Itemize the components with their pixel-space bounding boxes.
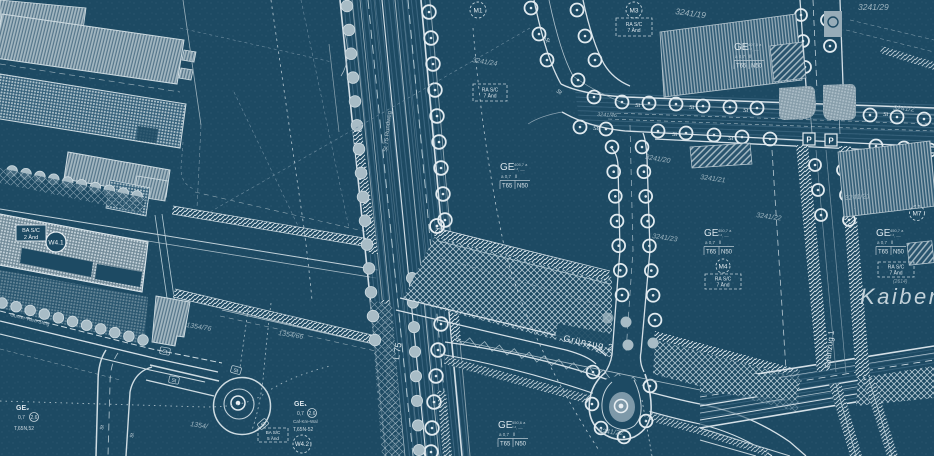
svg-text:0,7: 0,7 — [297, 411, 304, 417]
svg-text:7 Änd: 7 Änd — [483, 93, 496, 100]
svg-text:a 0,7: a 0,7 — [877, 240, 888, 245]
svg-text:Ⅱ: Ⅱ — [891, 240, 893, 245]
svg-text:2,6: 2,6 — [309, 411, 316, 417]
svg-text:GE: GE — [704, 228, 719, 239]
svg-text:M3: M3 — [629, 7, 638, 14]
svg-text:Ⅱ: Ⅱ — [719, 240, 721, 245]
svg-text:0,7: 0,7 — [18, 415, 25, 421]
svg-text:Ⅱ: Ⅱ — [515, 174, 517, 179]
svg-text:3241/29: 3241/29 — [858, 2, 889, 12]
svg-text:St: St — [743, 108, 749, 114]
svg-text:P: P — [806, 136, 812, 145]
svg-text:2 Änd: 2 Änd — [24, 234, 38, 241]
svg-text:(2614): (2614) — [893, 279, 908, 285]
svg-text:St: St — [883, 112, 889, 118]
svg-text:Caf-Kre-Wal: Caf-Kre-Wal — [293, 419, 318, 424]
svg-text:M4: M4 — [718, 263, 727, 270]
svg-text:²·³, ––: ²·³, –– — [748, 47, 759, 52]
svg-text:²·³, ––: ²·³, –– — [514, 167, 525, 172]
svg-text:N50: N50 — [893, 250, 905, 256]
svg-text:a 0,7: a 0,7 — [705, 240, 716, 245]
svg-text:St: St — [689, 105, 695, 111]
svg-text:Ⅱ: Ⅱ — [749, 54, 751, 59]
svg-text:GE: GE — [498, 420, 513, 431]
svg-text:T,65N-52: T,65N-52 — [293, 427, 314, 433]
svg-text:St: St — [593, 126, 599, 132]
svg-text:T65: T65 — [502, 184, 513, 190]
svg-text:N50: N50 — [515, 442, 527, 448]
svg-text:T65: T65 — [878, 250, 889, 256]
svg-text:GE: GE — [500, 162, 515, 173]
svg-text:a 0,7: a 0,7 — [735, 54, 746, 59]
svg-text:7 Änd: 7 Änd — [889, 270, 902, 277]
svg-text:²·³, ––: ²·³, –– — [890, 233, 901, 238]
svg-text:BA S/C: BA S/C — [22, 228, 40, 234]
svg-text:5 Änd: 5 Änd — [267, 435, 279, 441]
svg-text:²·³, ––: ²·³, –– — [718, 233, 729, 238]
svg-text:GE₁: GE₁ — [294, 401, 307, 408]
svg-text:N50: N50 — [751, 64, 763, 70]
svg-text:P: P — [828, 137, 834, 146]
svg-text:²·³, ––: ²·³, –– — [512, 425, 523, 430]
svg-text:3241/2: 3241/2 — [893, 105, 915, 113]
svg-text:Kaiber: Kaiber — [860, 284, 934, 309]
svg-text:3241/46: 3241/46 — [597, 112, 618, 119]
svg-text:GE₂: GE₂ — [16, 405, 29, 412]
svg-text:GE: GE — [734, 42, 749, 53]
svg-text:7 Änd: 7 Änd — [627, 27, 640, 34]
svg-text:W4.1: W4.1 — [48, 240, 64, 247]
svg-text:St: St — [728, 136, 734, 142]
svg-text:M7: M7 — [912, 210, 921, 217]
svg-text:St: St — [635, 103, 641, 109]
svg-text:Ⅱ: Ⅱ — [513, 432, 515, 437]
svg-text:T65: T65 — [736, 64, 747, 70]
svg-text:St: St — [672, 132, 678, 138]
svg-text:T65: T65 — [706, 250, 717, 256]
svg-text:a 0,7: a 0,7 — [501, 174, 512, 179]
svg-text:2,6: 2,6 — [31, 415, 38, 421]
svg-text:T65: T65 — [500, 442, 511, 448]
svg-text:M1: M1 — [473, 7, 482, 14]
svg-text:W4.2: W4.2 — [295, 442, 310, 448]
svg-text:GE: GE — [876, 228, 891, 239]
svg-text:BA S/C: BA S/C — [266, 430, 281, 435]
svg-text:N50: N50 — [721, 250, 733, 256]
svg-text:7 Änd: 7 Änd — [716, 282, 729, 289]
svg-text:a 0,7: a 0,7 — [499, 432, 510, 437]
svg-text:T,65N,52: T,65N,52 — [14, 426, 34, 432]
svg-text:N50: N50 — [517, 184, 529, 190]
